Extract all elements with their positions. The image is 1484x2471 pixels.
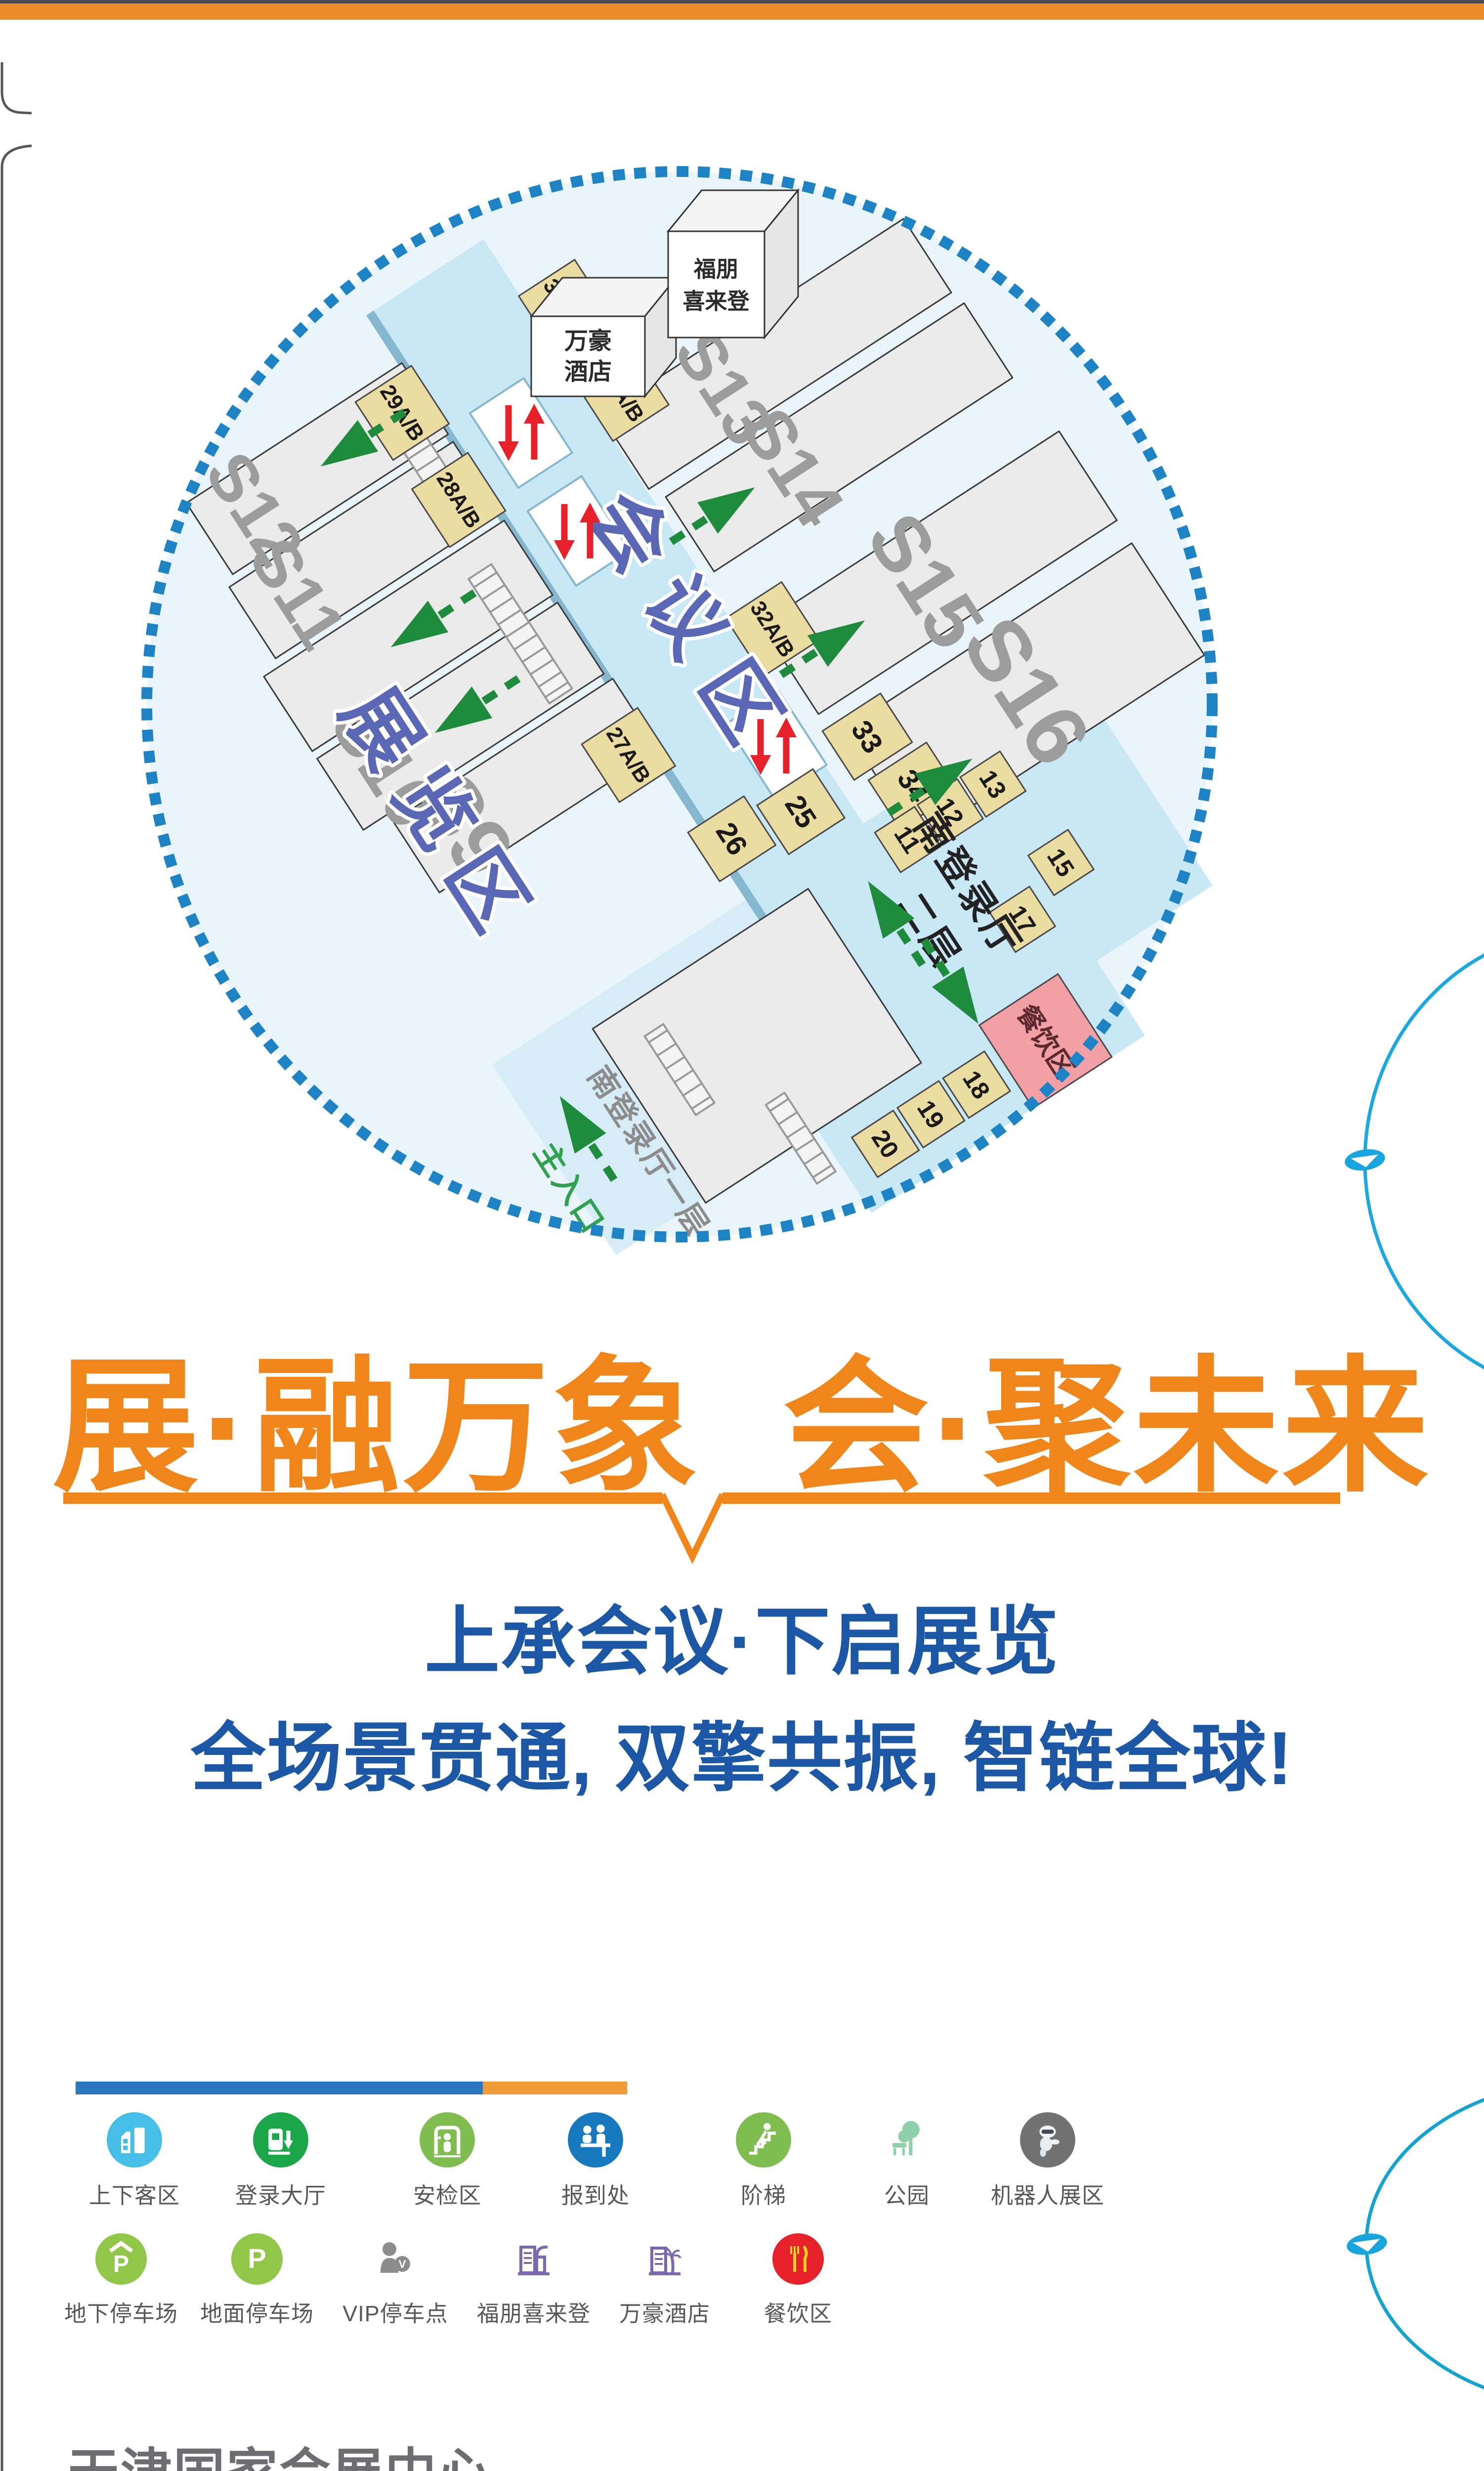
legend-item-vip-parking: V VIP停车点 [336, 2231, 455, 2328]
pickup-dropoff-icon [106, 2111, 163, 2169]
corner-line-top [2, 62, 32, 113]
park-icon [878, 2111, 935, 2169]
legend-item-ground-parking: P 地面停车场 [198, 2231, 316, 2328]
legend-label: 上下客区 [75, 2177, 194, 2210]
svg-text:喜来登: 喜来登 [682, 289, 750, 314]
dining-icon [770, 2231, 826, 2287]
legend-label: 报到处 [536, 2177, 655, 2210]
marriott-hotel-building: 万豪 酒店 [531, 278, 676, 396]
stairs-icon [735, 2111, 792, 2169]
legend-item-fourpoints: 福朋喜来登 [474, 2231, 593, 2328]
legend-label: 万豪酒店 [605, 2296, 724, 2328]
legend-label: VIP停车点 [336, 2296, 455, 2328]
svg-text:福朋: 福朋 [693, 256, 738, 282]
fourpoints-hotel-building: 福朋 喜来登 [668, 190, 798, 338]
login-hall-icon [252, 2111, 309, 2169]
svg-text:V: V [399, 2258, 406, 2270]
legend-item-pickup: 上下客区 [75, 2111, 194, 2210]
ground-parking-icon: P [229, 2231, 285, 2287]
legend-label: 餐饮区 [739, 2296, 857, 2328]
legend-item-underground-parking: P 地下停车场 [62, 2231, 180, 2328]
venue-name: 天津国家会展中心 [68, 2430, 491, 2471]
headline-part1: 展·融万象 [52, 1345, 701, 1509]
legend-item-security: 安检区 [388, 2111, 507, 2210]
svg-text:P: P [248, 2243, 266, 2274]
svg-text:酒店: 酒店 [564, 359, 612, 385]
legend-bar-blue [76, 2082, 483, 2094]
map-and-decor-canvas: 29A/B 30A/B 28A/B 31A/B 27A/B 32A/B 26 2… [0, 0, 1484, 2471]
slogan-line1: 上承会议·下启展览 [0, 1584, 1484, 1701]
legend-item-login-hall: 登录大厅 [221, 2111, 340, 2210]
slogan: 上承会议·下启展览 全场景贯通, 双擎共振, 智链全球! [0, 1584, 1484, 1817]
checkin-desk-icon [567, 2111, 624, 2169]
legend-label: 安检区 [388, 2177, 507, 2210]
legend-item-marriott: 万豪酒店 [605, 2231, 724, 2328]
legend-item-dining: 餐饮区 [739, 2231, 857, 2328]
scroll-marker-top [1343, 1147, 1386, 1173]
fourpoints-hotel-icon [506, 2231, 561, 2287]
svg-text:万豪: 万豪 [564, 328, 612, 354]
scroll-marker-bottom [1345, 2231, 1388, 2257]
marriott-hotel-icon [637, 2231, 692, 2287]
legend-item-checkin: 报到处 [536, 2111, 655, 2210]
legend-label: 公园 [848, 2177, 966, 2210]
legend-label: 地面停车场 [198, 2296, 316, 2328]
legend-item-park: 公园 [848, 2111, 966, 2210]
headline-part2: 会·聚未来 [783, 1345, 1432, 1509]
legend-label: 登录大厅 [221, 2177, 340, 2210]
legend-label: 阶梯 [704, 2177, 823, 2210]
security-check-icon [419, 2111, 476, 2169]
slogan-line2: 全场景贯通, 双擎共振, 智链全球! [0, 1701, 1484, 1817]
legend-label: 福朋喜来登 [474, 2296, 593, 2328]
legend-item-stairs: 阶梯 [704, 2111, 823, 2210]
legend-label: 机器人展区 [988, 2177, 1107, 2210]
legend-label: 地下停车场 [62, 2296, 180, 2328]
svg-text:P: P [113, 2251, 129, 2277]
poster: 29A/B 30A/B 28A/B 31A/B 27A/B 32A/B 26 2… [0, 0, 1484, 2471]
legend-divider-bar [76, 2082, 627, 2094]
underground-parking-icon: P [93, 2231, 149, 2287]
vip-parking-icon: V [368, 2231, 423, 2287]
robot-zone-icon [1019, 2111, 1076, 2169]
legend-bar-orange [483, 2082, 627, 2094]
headline: 展·融万象会·聚未来 [0, 1309, 1484, 1520]
site-map: 29A/B 30A/B 28A/B 31A/B 27A/B 32A/B 26 2… [95, 33, 1360, 1353]
legend-item-robot-zone: 机器人展区 [988, 2111, 1107, 2210]
